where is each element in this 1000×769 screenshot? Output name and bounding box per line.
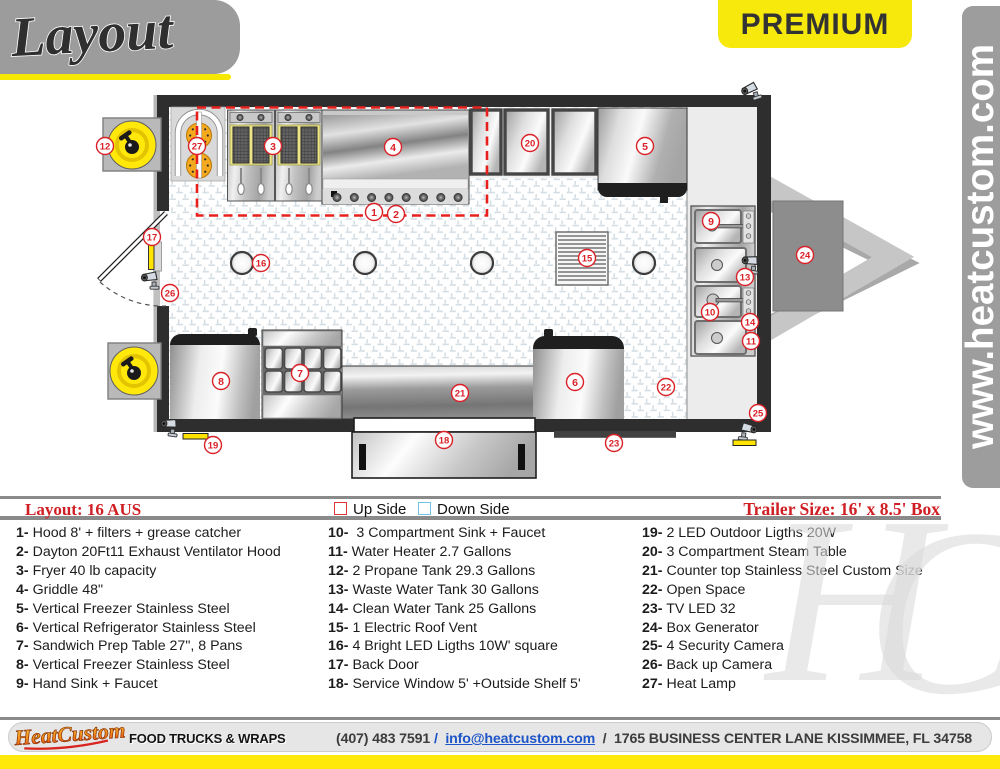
svg-text:2: 2 <box>393 209 399 221</box>
svg-text:9: 9 <box>708 216 714 228</box>
svg-text:6: 6 <box>572 377 578 389</box>
svg-text:12: 12 <box>100 142 111 153</box>
svg-text:HeatCustom: HeatCustom <box>13 718 127 750</box>
svg-text:22: 22 <box>661 383 672 394</box>
svg-text:7: 7 <box>297 368 303 380</box>
svg-text:1: 1 <box>371 207 377 219</box>
svg-text:19: 19 <box>208 441 219 452</box>
svg-text:17: 17 <box>147 233 158 244</box>
svg-text:8: 8 <box>218 376 224 388</box>
svg-text:25: 25 <box>753 409 764 420</box>
svg-text:18: 18 <box>439 436 450 447</box>
svg-text:4: 4 <box>390 142 396 154</box>
svg-text:10: 10 <box>705 308 716 319</box>
svg-text:20: 20 <box>525 139 536 150</box>
svg-text:13: 13 <box>740 273 751 284</box>
svg-text:26: 26 <box>165 289 176 300</box>
svg-text:27: 27 <box>192 142 203 153</box>
svg-text:21: 21 <box>455 389 466 400</box>
svg-text:11: 11 <box>746 337 757 348</box>
svg-text:5: 5 <box>642 141 648 153</box>
svg-text:24: 24 <box>800 251 811 262</box>
svg-text:14: 14 <box>745 318 756 329</box>
svg-text:23: 23 <box>609 439 620 450</box>
svg-text:3: 3 <box>270 141 276 153</box>
svg-text:16: 16 <box>256 259 267 270</box>
svg-text:15: 15 <box>582 254 593 265</box>
